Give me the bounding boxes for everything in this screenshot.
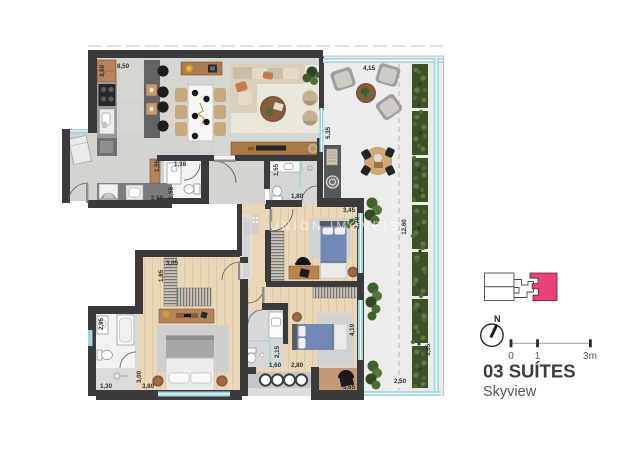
- svg-text:2,70: 2,70: [354, 216, 361, 229]
- svg-text:3,80: 3,80: [142, 383, 155, 390]
- svg-text:3,60: 3,60: [99, 64, 106, 77]
- svg-text:1,60: 1,60: [269, 362, 282, 369]
- svg-text:8,50: 8,50: [117, 63, 130, 70]
- svg-text:5,35: 5,35: [325, 126, 332, 139]
- svg-text:1,38: 1,38: [174, 161, 187, 168]
- svg-text:1,80: 1,80: [291, 193, 304, 200]
- svg-text:2,15: 2,15: [274, 345, 281, 358]
- svg-text:4,10: 4,10: [349, 323, 356, 336]
- svg-text:N: N: [494, 314, 501, 324]
- svg-text:Skyview: Skyview: [483, 384, 537, 400]
- svg-text:2,95: 2,95: [98, 317, 105, 330]
- svg-text:3,45: 3,45: [343, 207, 356, 214]
- svg-text:1,55: 1,55: [168, 186, 175, 199]
- svg-text:2,50: 2,50: [151, 195, 164, 202]
- svg-text:03 SUÍTES: 03 SUÍTES: [483, 361, 576, 382]
- svg-text:2,50: 2,50: [394, 378, 407, 385]
- svg-text:UNION IMÓVEIS: UNION IMÓVEIS: [270, 218, 401, 233]
- svg-text:3,65: 3,65: [425, 343, 432, 356]
- svg-text:1,55: 1,55: [273, 163, 280, 176]
- svg-text:3,00: 3,00: [136, 370, 143, 383]
- svg-text:3,05: 3,05: [166, 260, 179, 267]
- svg-text:4,15: 4,15: [363, 65, 376, 72]
- svg-text:1,85: 1,85: [158, 269, 165, 282]
- svg-text:2,80: 2,80: [291, 362, 304, 369]
- svg-text:12,60: 12,60: [401, 219, 408, 235]
- svg-text:3m: 3m: [583, 351, 597, 362]
- svg-text:3,65: 3,65: [343, 384, 356, 391]
- svg-text:1,55: 1,55: [154, 159, 161, 172]
- svg-text:1,30: 1,30: [100, 383, 113, 390]
